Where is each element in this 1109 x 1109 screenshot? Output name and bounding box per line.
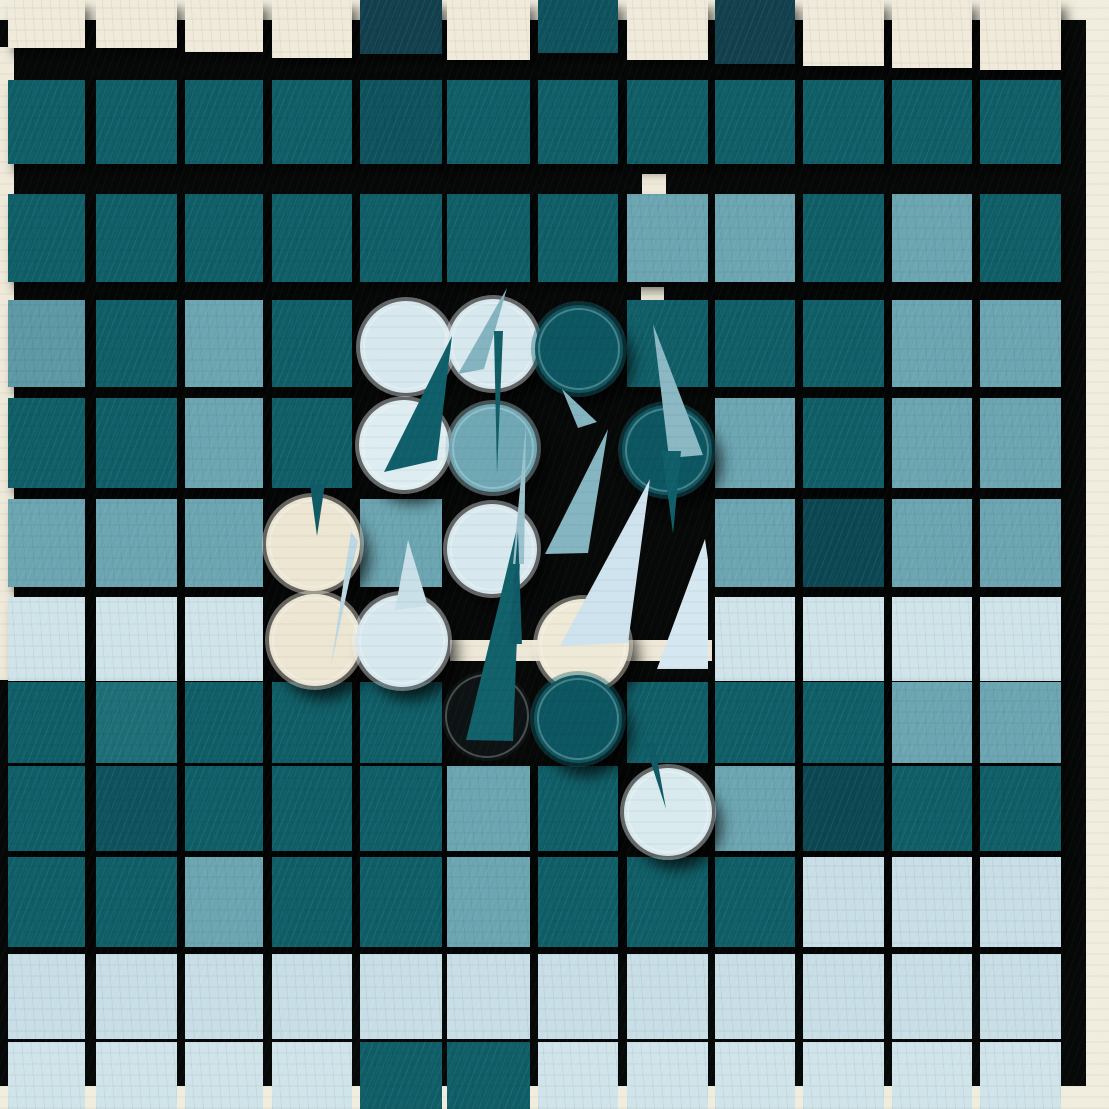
sail-steel-big (545, 429, 608, 554)
needle-pale-on-disc9 (331, 532, 358, 666)
needle-dark-under-disc6 (662, 451, 681, 534)
sail-dark-left-big (384, 336, 452, 472)
needle-on-disc13 (645, 741, 666, 809)
sail-pale-right (657, 539, 708, 669)
game-board-canvas (0, 0, 1109, 1109)
needle-on-cream-disc7 (310, 484, 325, 536)
sail-marker-layer (0, 0, 1109, 1109)
needle-dark-disc2 (494, 331, 503, 474)
sail-steel-small (562, 389, 597, 428)
needle-steel-thin (513, 424, 526, 564)
sail-steel-on-disc6 (653, 324, 703, 458)
sail-pale-above-disc10 (395, 540, 428, 610)
